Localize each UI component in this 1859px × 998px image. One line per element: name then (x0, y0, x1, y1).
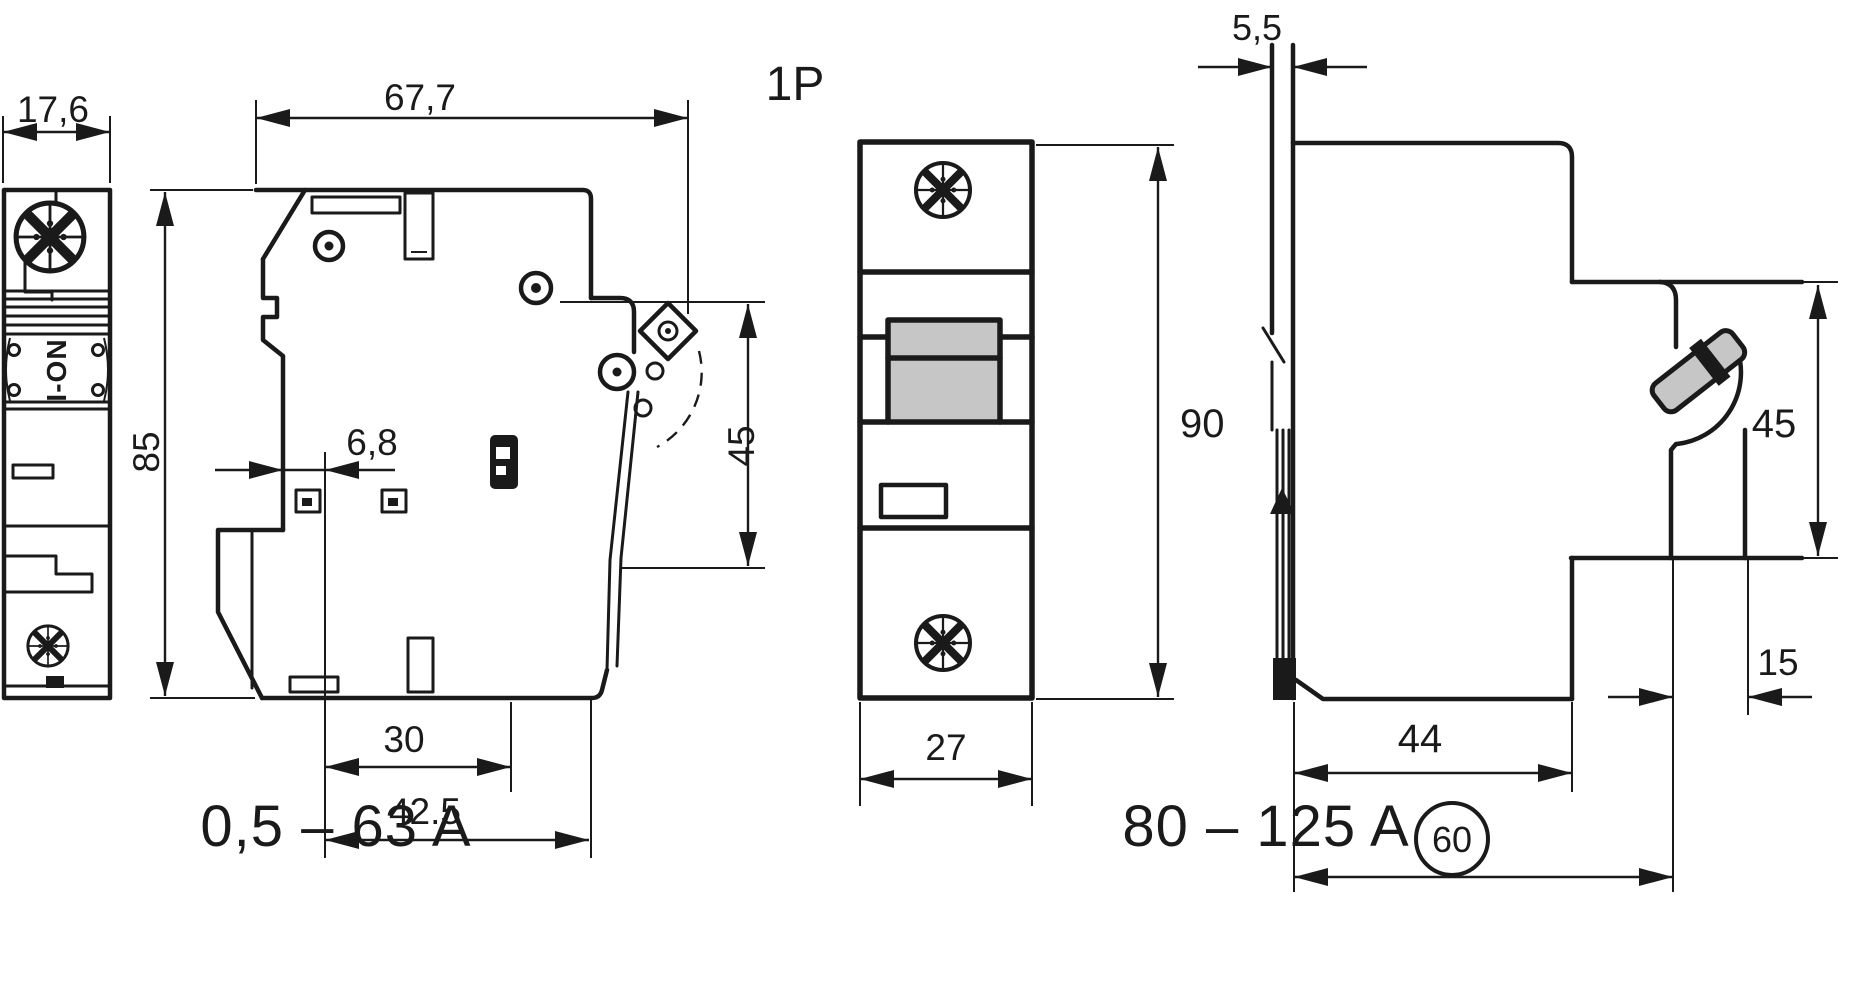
toggle-rocker (888, 320, 1000, 422)
side-view-large: 5,5 (1122, 7, 1838, 892)
rating-label-right: 80 – 125 A (1122, 794, 1409, 859)
breaker-dimension-drawing: 17,6 I-ON 85 (0, 0, 1859, 998)
handle-marking-label: I-ON (41, 338, 72, 401)
dim-label-slot-distance: 30 (383, 719, 424, 760)
dim-label-depth-677: 67,7 (384, 77, 456, 118)
rating-label-left: 0,5 – 63 A (200, 794, 471, 859)
dim-label-edge-offset: 15 (1757, 642, 1798, 683)
side-view-small: 67,7 (200, 77, 765, 859)
dim-label-depth-44: 44 (1398, 717, 1443, 761)
din-symbol-component (490, 435, 518, 489)
dim-label-handle-zone-right: 45 (1752, 402, 1797, 446)
dim-label-recess-depth: 60 (1432, 819, 1472, 860)
rocker-switch: I-ON (6, 338, 108, 402)
screw-icon (916, 163, 970, 217)
latch-mechanism (600, 303, 702, 670)
toggle-handle (1644, 322, 1752, 421)
din-clip (218, 530, 283, 698)
screw-icon (28, 626, 68, 666)
dim-label-front-width: 17,6 (17, 89, 89, 130)
dim-label-height-90: 90 (1180, 402, 1225, 446)
front-view-narrow: 17,6 I-ON (3, 89, 110, 698)
technical-drawing-page: 17,6 I-ON 85 (0, 0, 1859, 998)
marking-window (881, 485, 946, 517)
dim-label-width-27: 27 (925, 727, 966, 768)
dim-85: 85 (126, 190, 255, 698)
screw-icon (916, 616, 970, 670)
dim-label-height-85: 85 (126, 431, 167, 472)
dim-label-handle-zone-left: 45 (721, 425, 762, 466)
pole-count-label: 1P (766, 58, 825, 111)
front-view-1p: 1P 90 27 (766, 58, 1225, 806)
dim-label-din-offset: 6,8 (346, 422, 397, 463)
dim-label-panel-thickness: 5,5 (1232, 7, 1282, 48)
